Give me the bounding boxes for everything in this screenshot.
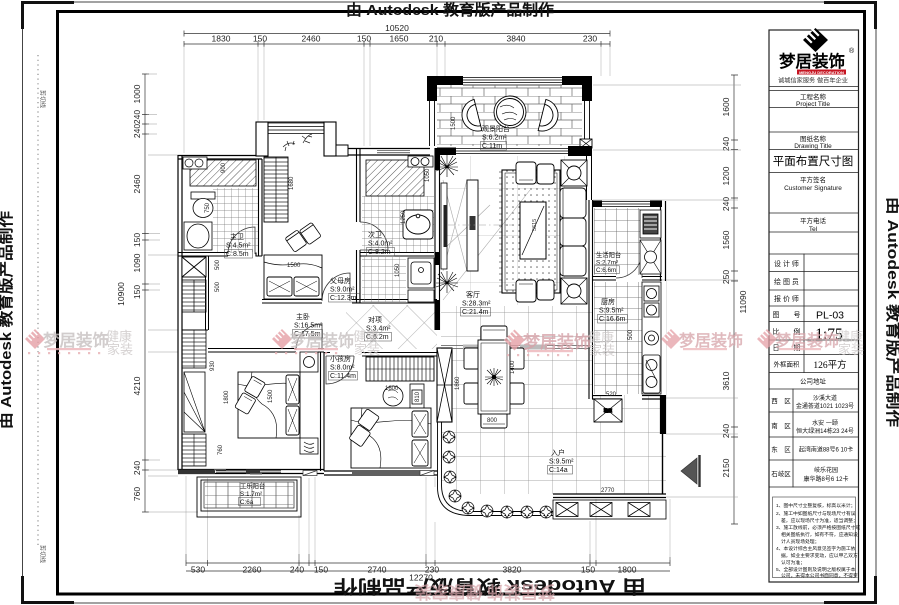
svg-text:S:4.0m²: S:4.0m²	[368, 241, 393, 248]
svg-text:梦居装饰: 梦居装饰	[523, 332, 591, 352]
svg-text:工乐阳台: 工乐阳台	[240, 481, 265, 490]
svg-text:设 计 师: 设 计 师	[774, 259, 799, 268]
svg-text:工程名称: 工程名称	[800, 92, 827, 101]
svg-text:平方签名: 平方签名	[800, 175, 826, 184]
svg-text:岐乐花园: 岐乐花园	[814, 466, 838, 474]
svg-text:1090: 1090	[132, 253, 142, 272]
svg-text:1560: 1560	[721, 230, 731, 249]
svg-text:计人员现场处理；: 计人员现场处理；	[781, 538, 819, 545]
svg-text:梦居装饰 健康家装: 梦居装饰 健康家装	[415, 582, 555, 602]
svg-text:2460: 2460	[302, 34, 321, 44]
svg-text:S:16.5m²: S:16.5m²	[294, 323, 323, 330]
svg-text:Drawing Title: Drawing Title	[794, 143, 832, 150]
svg-text:1650: 1650	[390, 34, 409, 44]
svg-text:公司地址: 公司地址	[800, 377, 827, 386]
svg-text:240: 240	[290, 565, 304, 575]
svg-text:主卫: 主卫	[230, 232, 244, 241]
svg-text:南 区: 南 区	[771, 421, 791, 430]
svg-text:1500: 1500	[451, 116, 457, 130]
svg-text:240: 240	[132, 124, 142, 138]
svg-text:3820: 3820	[503, 565, 522, 575]
svg-text:梦居装饰: 梦居装饰	[43, 330, 109, 350]
svg-text:起湾南道88号6 10卡: 起湾南道88号6 10卡	[799, 446, 853, 454]
svg-text:报 价 师: 报 价 师	[774, 294, 799, 303]
svg-text:家装: 家装	[838, 342, 864, 357]
svg-text:126平方: 126平方	[813, 359, 846, 371]
svg-text:次卫: 次卫	[368, 230, 382, 239]
svg-text:240: 240	[721, 197, 731, 211]
svg-text:入户: 入户	[551, 448, 565, 457]
svg-text:C:12.3m: C:12.3m	[330, 295, 357, 302]
svg-text:鞋柜: 鞋柜	[604, 407, 612, 414]
svg-text:930: 930	[210, 360, 216, 371]
svg-text:S:28.3m²: S:28.3m²	[462, 301, 491, 308]
svg-text:4、本设计综合主风意见签字为施工依: 4、本设计综合主风意见签字为施工依	[776, 545, 856, 552]
svg-text:平面布置尺寸图: 平面布置尺寸图	[773, 154, 854, 168]
svg-text:810: 810	[415, 391, 421, 402]
svg-text:1050: 1050	[395, 263, 401, 277]
svg-text:S:9.0m²: S:9.0m²	[330, 287, 355, 294]
svg-text:父母房: 父母房	[330, 276, 351, 285]
svg-text:诚城信家服务 做百年企业: 诚城信家服务 做百年企业	[778, 77, 848, 85]
svg-text:12270: 12270	[409, 573, 433, 583]
svg-text:金通荟道1021 1023号: 金通荟道1021 1023号	[796, 402, 854, 410]
svg-text:PL-03: PL-03	[816, 310, 844, 322]
svg-text:Customer Signature: Customer Signature	[784, 185, 842, 192]
svg-text:240: 240	[721, 137, 731, 151]
svg-text:外框面积: 外框面积	[774, 360, 801, 369]
svg-text:梦居装饰: 梦居装饰	[779, 51, 845, 71]
svg-text:500: 500	[215, 281, 221, 292]
svg-text:500: 500	[215, 259, 221, 270]
svg-text:家装: 家装	[589, 343, 615, 358]
svg-text:760: 760	[218, 444, 224, 455]
svg-text:由 Autodesk 教育版产品制作: 由 Autodesk 教育版产品制作	[0, 211, 15, 429]
svg-text:11090: 11090	[738, 290, 748, 313]
svg-text:西 区: 西 区	[771, 397, 791, 405]
svg-text:240: 240	[132, 110, 142, 124]
svg-text:生活阳台: 生活阳台	[596, 250, 621, 259]
svg-text:C:11.4m: C:11.4m	[330, 373, 356, 380]
svg-text:1250: 1250	[401, 210, 407, 224]
svg-text:1500: 1500	[268, 389, 274, 403]
svg-text:4210: 4210	[132, 376, 142, 395]
svg-text:2260: 2260	[243, 565, 262, 575]
svg-text:150: 150	[132, 233, 142, 247]
svg-text:240: 240	[721, 424, 731, 438]
svg-text:230: 230	[583, 34, 597, 44]
svg-text:S:4.5m²: S:4.5m²	[226, 243, 251, 250]
svg-text:900: 900	[221, 162, 227, 173]
svg-text:Project Title: Project Title	[796, 101, 830, 108]
svg-text:梦居装饰: 梦居装饰	[775, 331, 839, 350]
svg-text:250: 250	[721, 270, 731, 284]
svg-text:3、施工放线前，必须严格按图纸尺寸或: 3、施工放线前，必须严格按图纸尺寸或	[776, 524, 860, 531]
svg-text:800: 800	[487, 418, 498, 424]
svg-text:C:6.6m: C:6.6m	[596, 267, 616, 274]
svg-text:1680: 1680	[289, 176, 295, 190]
svg-text:3840: 3840	[507, 34, 526, 44]
svg-text:750: 750	[205, 202, 211, 213]
svg-text:S:8.0m²: S:8.0m²	[330, 365, 355, 372]
svg-text:对项: 对项	[368, 315, 382, 324]
svg-text:恒大绿洲14栋23 24号: 恒大绿洲14栋23 24号	[796, 427, 854, 435]
svg-text:150: 150	[253, 34, 267, 44]
svg-text:由 Autodesk 教育版产品制作: 由 Autodesk 教育版产品制作	[884, 197, 899, 427]
svg-text:2、施工中如图纸尺寸与现场尺寸有误: 2、施工中如图纸尺寸与现场尺寸有误	[776, 510, 856, 517]
svg-text:厨房: 厨房	[601, 297, 615, 306]
svg-text:S:1.7m²: S:1.7m²	[240, 491, 262, 498]
svg-text:S:2.7m²: S:2.7m²	[596, 260, 618, 267]
svg-text:2770: 2770	[601, 488, 615, 494]
svg-text:MENGJU DECORATION: MENGJU DECORATION	[799, 70, 844, 75]
svg-text:C:14a: C:14a	[549, 467, 568, 474]
svg-text:3610: 3610	[721, 371, 731, 390]
svg-text:1600: 1600	[385, 386, 399, 392]
svg-text:剪切线: 剪切线	[39, 90, 47, 108]
svg-text:1200: 1200	[721, 166, 731, 185]
svg-text:10900: 10900	[116, 282, 126, 306]
svg-text:S:6.2m²: S:6.2m²	[482, 135, 507, 142]
svg-text:C:21.4m: C:21.4m	[462, 309, 489, 316]
svg-text:530: 530	[191, 565, 205, 575]
svg-text:C:6a: C:6a	[240, 499, 254, 506]
svg-text:S:9.5m²: S:9.5m²	[549, 459, 574, 466]
svg-text:水安 一颐: 水安 一颐	[812, 419, 838, 427]
svg-text:S:9.5m²: S:9.5m²	[599, 308, 624, 315]
svg-text:家装: 家装	[107, 342, 133, 357]
svg-text:150: 150	[357, 34, 371, 44]
svg-text:C:8.5m: C:8.5m	[226, 251, 249, 258]
svg-text:240: 240	[132, 461, 142, 475]
svg-text:1000: 1000	[132, 84, 142, 103]
svg-text:绘 图 员: 绘 图 员	[774, 277, 799, 286]
svg-text:图纸名称: 图纸名称	[800, 134, 827, 143]
svg-text:认可为准；: 认可为准；	[781, 559, 805, 566]
svg-text:2150: 2150	[721, 458, 731, 477]
svg-text:家装: 家装	[354, 342, 380, 357]
svg-text:®: ®	[849, 47, 855, 55]
svg-text:梦居装饰: 梦居装饰	[290, 331, 354, 350]
svg-text:公司，未得本公司书面同意，不得变: 公司，未得本公司书面同意，不得变	[781, 572, 858, 579]
svg-text:观景阳台: 观景阳台	[482, 124, 510, 133]
svg-text:梦居装饰: 梦居装饰	[679, 331, 743, 350]
svg-text:康华路8号6 12卡: 康华路8号6 12卡	[803, 475, 848, 483]
svg-text:500: 500	[628, 329, 634, 340]
svg-text:东 区: 东 区	[771, 445, 791, 454]
svg-text:2740: 2740	[368, 565, 387, 575]
svg-text:C:16.6m: C:16.6m	[599, 316, 626, 323]
svg-text:沙溪大道: 沙溪大道	[813, 394, 837, 402]
svg-text:1860: 1860	[455, 376, 461, 390]
svg-text:150: 150	[314, 565, 328, 575]
svg-text:Tel: Tel	[809, 226, 818, 233]
svg-text:5615: 5615	[532, 219, 538, 231]
svg-text:520: 520	[606, 392, 617, 398]
svg-text:210: 210	[429, 34, 443, 44]
svg-text:相关图纸执行，如有不符，应通知设: 相关图纸执行，如有不符，应通知设	[781, 531, 858, 538]
svg-text:据，如业主要求变动，应以甲乙双方: 据，如业主要求变动，应以甲乙双方	[781, 552, 858, 559]
svg-text:石岐区: 石岐区	[771, 469, 791, 478]
svg-text:1、图中尺寸立整复核，标高以米计；: 1、图中尺寸立整复核，标高以米计；	[776, 502, 855, 509]
svg-text:150: 150	[132, 285, 142, 299]
svg-text:客厅: 客厅	[466, 290, 480, 299]
svg-text:1800: 1800	[618, 565, 637, 575]
svg-text:C:11m: C:11m	[482, 143, 502, 150]
svg-text:1830: 1830	[212, 34, 231, 44]
svg-text:C:8.2m: C:8.2m	[368, 249, 391, 256]
svg-text:图 号: 图 号	[773, 311, 801, 319]
svg-text:10520: 10520	[385, 23, 409, 33]
svg-text:平方电话: 平方电话	[800, 216, 827, 225]
svg-text:150: 150	[581, 565, 595, 575]
svg-text:1050: 1050	[425, 168, 431, 182]
svg-text:差，应以现场尺寸为准，适当调整；: 差，应以现场尺寸为准，适当调整；	[781, 517, 858, 524]
svg-text:1600: 1600	[721, 97, 731, 116]
svg-text:5、全部设计图则及说明之版权属于本: 5、全部设计图则及说明之版权属于本	[776, 566, 856, 573]
svg-text:760: 760	[132, 487, 142, 501]
svg-text:小孩房: 小孩房	[330, 354, 351, 363]
svg-text:2460: 2460	[132, 174, 142, 193]
svg-text:1400: 1400	[510, 360, 516, 374]
svg-text:主卧: 主卧	[296, 312, 310, 321]
svg-text:剪切线: 剪切线	[39, 545, 47, 563]
svg-text:1800: 1800	[224, 390, 230, 404]
svg-text:由 Autodesk 教育版产品制作: 由 Autodesk 教育版产品制作	[346, 1, 554, 19]
svg-text:1500: 1500	[287, 263, 301, 269]
